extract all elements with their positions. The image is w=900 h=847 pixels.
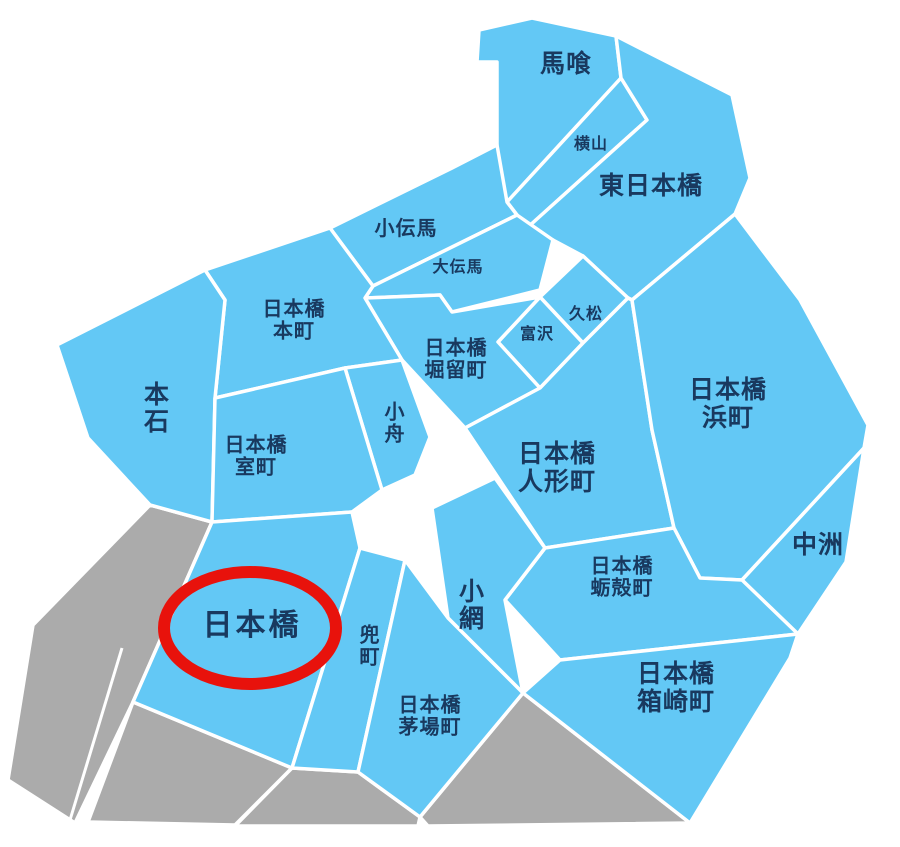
region-hongoku [57,270,225,522]
map-canvas [0,0,900,847]
nihonbashi-district-map: 馬喰 横山 東日本橋 小伝馬 大伝馬 日本橋 本町 久松 富沢 日本橋 堀留町 … [0,0,900,847]
